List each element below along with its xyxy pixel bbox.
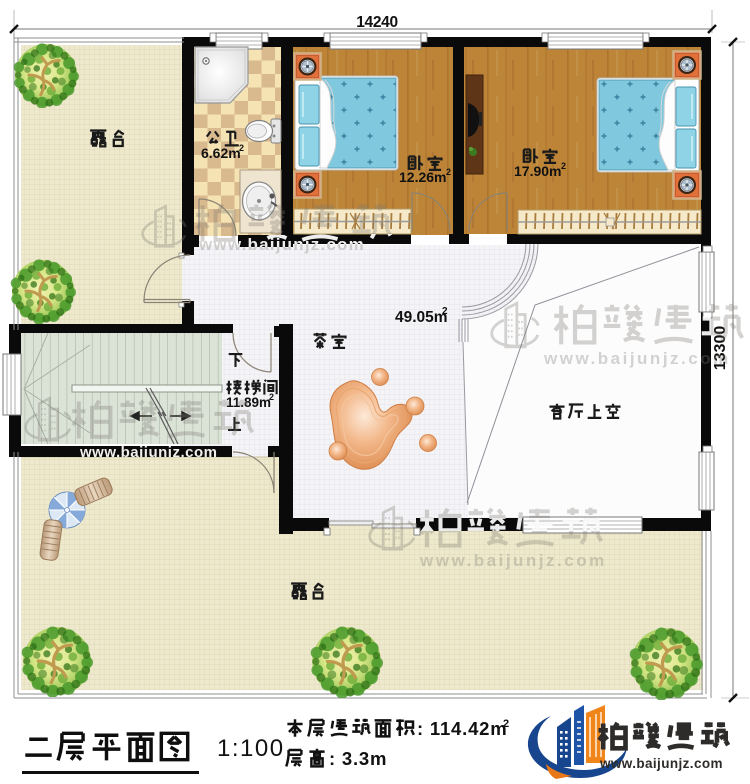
svg-text:2: 2 xyxy=(239,143,244,153)
svg-text:2: 2 xyxy=(442,306,448,317)
svg-text:: 3.3m: : 3.3m xyxy=(329,748,387,769)
svg-text:2: 2 xyxy=(446,167,451,177)
svg-text:12.26m: 12.26m xyxy=(399,169,446,185)
svg-text:2: 2 xyxy=(503,718,509,730)
svg-text:: 114.42m: : 114.42m xyxy=(417,718,508,739)
svg-text:14240: 14240 xyxy=(356,14,398,31)
svg-text:2: 2 xyxy=(561,161,566,171)
svg-text:49.05m: 49.05m xyxy=(395,309,448,326)
svg-text:1:100: 1:100 xyxy=(217,735,285,762)
svg-text:www.baijunjz.com: www.baijunjz.com xyxy=(599,756,723,771)
svg-text:6.62m: 6.62m xyxy=(201,145,241,161)
svg-text:www.baijunjz.com: www.baijunjz.com xyxy=(419,551,607,570)
svg-text:www.baijunjz.com: www.baijunjz.com xyxy=(543,349,731,368)
svg-text:11.89m: 11.89m xyxy=(226,395,271,410)
svg-text:2: 2 xyxy=(269,392,274,402)
svg-text:17.90m: 17.90m xyxy=(514,163,561,179)
